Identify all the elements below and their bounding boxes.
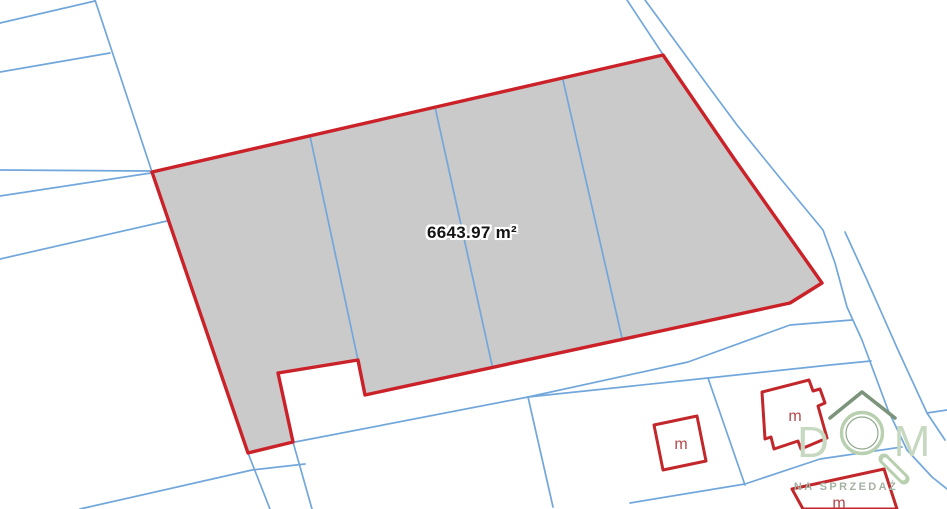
row-line xyxy=(0,1,95,23)
road-line xyxy=(627,0,662,53)
row-line xyxy=(0,173,151,196)
highlighted-parcel-fill xyxy=(152,55,822,453)
cadastral-map: mmm xyxy=(0,0,947,509)
logo-graphic-layer xyxy=(830,392,904,479)
magnifier-lens-icon xyxy=(842,413,883,454)
lot-line xyxy=(293,442,312,509)
diagonal-line xyxy=(95,0,152,172)
magnifier-lens-inner-ring xyxy=(846,417,878,449)
row-line xyxy=(927,410,947,413)
lot-line xyxy=(248,453,270,509)
buildings-layer: mmm xyxy=(654,380,897,509)
building-label: m xyxy=(788,408,801,425)
building-label: m xyxy=(674,436,687,453)
lot-divider xyxy=(708,378,745,485)
row-line xyxy=(0,170,150,171)
building-label: m xyxy=(832,495,845,509)
parcel-fill-layer xyxy=(152,55,822,453)
row-line xyxy=(0,53,110,72)
row-line xyxy=(0,221,167,259)
map-canvas: mmm 6643.97 m² D M NA SPRZEDAŻ xyxy=(0,0,947,509)
lot-divider xyxy=(528,397,553,507)
row-line xyxy=(80,464,305,509)
